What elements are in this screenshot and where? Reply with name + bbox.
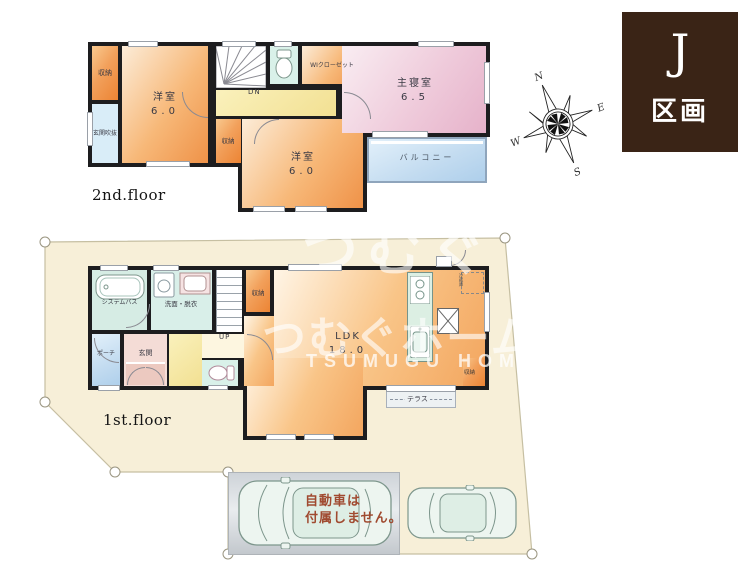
entrance-void-label: 玄関吹抜 [89,128,121,137]
window [146,161,190,167]
western-room2-label: 洋室 6.0 [244,148,362,177]
window [266,434,296,440]
storage1-2f-label: 収納 [92,68,118,78]
window [274,41,292,47]
sink-icon [179,272,211,295]
walkin-closet-label: WIクローゼット [302,60,362,69]
bath-label: システムバス [91,297,148,306]
window [253,206,285,212]
window [418,41,454,47]
window [484,62,490,104]
car-disclaimer: 自動車は 付属しません。 [305,493,403,527]
porch-label: ポーチ [91,348,121,357]
car-right [406,485,518,541]
section-letter: J [671,29,690,76]
stairs-1f [216,270,242,332]
compass-e: E [595,101,607,115]
watermark-latin: TSUMUGU HOME [306,351,540,372]
hall-2f [216,90,336,116]
compass-rose: N E S W [505,66,611,182]
section-badge: J 区画 [622,12,738,152]
toilet-icon-1f [206,363,236,383]
balcony-label: バルコニー [367,152,487,163]
stairs-up-label: UP [219,333,230,341]
storage1-1f-label: 収納 [244,287,272,297]
window [222,41,256,47]
window [100,265,128,271]
window [153,265,179,271]
window [128,41,158,47]
washroom-label: 洗面・脱衣 [150,298,212,308]
balcony-sill [371,141,483,144]
entrance-label: 玄関 [124,348,167,358]
stairs-2f [216,46,266,88]
floorplan-page: 収納 玄関吹抜 洋室 6.0 DN WIクローゼット 主寝室 6.5 バルコニー… [0,0,743,573]
compass-n: N [532,70,546,84]
washer-icon [153,272,175,298]
floor1-caption: 1st.floor [103,411,171,429]
compass-s: S [572,166,583,179]
compass-w: W [509,135,523,149]
window [208,385,228,390]
section-label: 区画 [651,91,709,128]
terrace-slider [386,385,456,392]
master-bedroom-label: 主寝室 6.5 [352,74,478,103]
watermark-logo: つむぐ [302,206,494,287]
window [372,131,428,138]
western-room1-label: 洋室 6.0 [122,88,208,117]
toilet-icon-2f [274,49,294,81]
floor2-caption: 2nd.floor [92,186,166,204]
porch-opening [98,385,120,391]
window [304,434,334,440]
stairs-dn-label: DN [248,88,261,96]
terrace-label: テラス [405,394,430,404]
hall-1f [169,334,202,386]
storage2-2f-label: 収納 [213,135,243,145]
